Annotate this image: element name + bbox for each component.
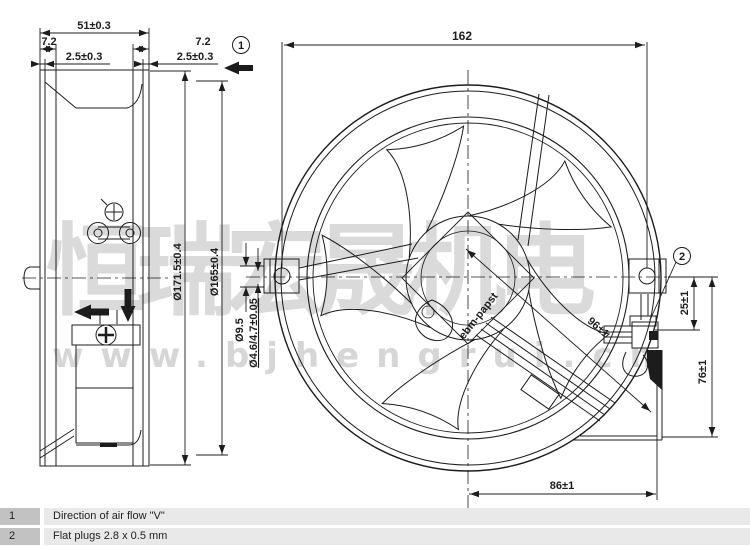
mounting-screw (96, 325, 116, 345)
legend-text-plugs: Flat plugs 2.8 x 0.5 mm (44, 528, 750, 545)
dim-mounting-boss-diameter: Ø9.5 (234, 318, 246, 342)
support-struts (299, 94, 615, 421)
legend-ref-2: 2 (0, 528, 40, 545)
dim-mounting-hole-diameter: Ø4.6/4.7±0.05 (248, 298, 260, 368)
dim-plug-horizontal-offset: 86±1 (550, 480, 574, 492)
dim-flange-depth-right: 7.2 (195, 36, 210, 48)
terminal-box (573, 294, 662, 440)
dim-plug-vertical-offset: 25±1 (679, 291, 691, 315)
legend-row-airflow: 1 Direction of air flow "V" (0, 508, 750, 525)
legend: 1 Direction of air flow "V" 2 Flat plugs… (0, 505, 750, 545)
airflow-direction-arrow (224, 62, 253, 75)
callout-plugs-number: 2 (679, 251, 685, 263)
legend-text-airflow: Direction of air flow "V" (44, 508, 750, 525)
front-view: ebm-papst (246, 70, 706, 512)
fan-technical-drawing: 恒瑞宏晟机电 www.bjhengrui.cn (0, 0, 750, 546)
dim-venturi-diameter: Ø165±0.4 (209, 247, 221, 296)
dim-flange-depth-left: 7.2 (41, 36, 56, 48)
side-view (22, 70, 170, 466)
dimension-layer: 51±0.3 7.2 2.5±0.3 7.2 2.5±0.3 (31, 20, 718, 500)
dim-mounting-hole-spacing: 162 (452, 29, 472, 43)
legend-ref-1: 1 (0, 508, 40, 525)
dim-flange-lip-left: 2.5±0.3 (66, 51, 103, 63)
dim-outer-diameter: Ø171.5±0.4 (172, 242, 184, 300)
airflow-left-arrow (74, 305, 109, 320)
dim-overall-depth: 51±0.3 (77, 20, 111, 32)
legend-row-plugs: 2 Flat plugs 2.8 x 0.5 mm (0, 528, 750, 545)
callout-airflow-number: 1 (238, 40, 244, 52)
dim-plug-vertical-extent: 76±1 (697, 360, 709, 384)
drawing-canvas: ebm-papst (0, 0, 750, 546)
callout-airflow: 1 (224, 37, 253, 75)
dim-flange-lip-right: 2.5±0.3 (177, 51, 214, 63)
motor-housing (76, 345, 133, 443)
impeller-blades (284, 98, 627, 448)
